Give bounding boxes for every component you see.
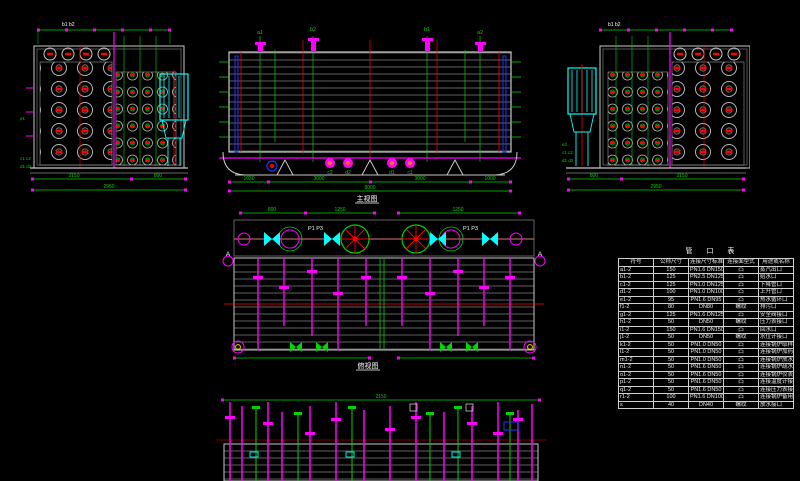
table-row: h1-250DN50螺纹压力表接口 xyxy=(619,319,794,327)
svg-text:2150: 2150 xyxy=(375,394,386,400)
base xyxy=(30,168,188,173)
table-cell: PN1.6 DN150 xyxy=(689,326,724,334)
table-cell: 连接锅炉取样接口 xyxy=(759,341,794,349)
table-cell: i1-2 xyxy=(619,326,654,334)
svg-text:2950: 2950 xyxy=(103,184,114,190)
table-cell: 连接锅炉仪表接口 xyxy=(759,371,794,379)
tube-bank-left xyxy=(608,72,668,165)
shell-clipped xyxy=(224,444,538,481)
table-cell: 凸 xyxy=(724,326,759,334)
table-cell: o1-2 xyxy=(619,371,654,379)
svg-text:d1 d2: d1 d2 xyxy=(20,164,32,169)
column-header: 用途或名称 xyxy=(759,259,794,267)
table-cell: DN80 xyxy=(689,304,724,312)
svg-text:a1: a1 xyxy=(257,30,263,36)
handwheel-valve xyxy=(341,225,369,253)
table-cell: 放水接口 xyxy=(759,401,794,409)
svg-text:A: A xyxy=(538,251,543,258)
table-cell: b1-2 xyxy=(619,274,654,282)
table-cell: d1-2 xyxy=(619,289,654,297)
table-cell: 凸 xyxy=(724,356,759,364)
table-cell: 50 xyxy=(654,386,689,394)
table-cell: 排污口 xyxy=(759,304,794,312)
svg-text:2950: 2950 xyxy=(650,184,661,190)
table-cell: h1-2 xyxy=(619,319,654,327)
table-cell: 凸 xyxy=(724,274,759,282)
section-arrow-left: A xyxy=(223,251,233,266)
table-cell: PN2.5 DN125 xyxy=(689,274,724,282)
table-cell: 热水循环口 xyxy=(759,296,794,304)
table-cell: q1-2 xyxy=(619,386,654,394)
table-cell: 蒸汽出口 xyxy=(759,266,794,274)
table-cell: 50 xyxy=(654,364,689,372)
table-cell: PN1.6 DN50 xyxy=(689,379,724,387)
table-cell: PN1.0 DN50 xyxy=(689,356,724,364)
bottom-dimension: 800 2150 2950 xyxy=(567,173,745,192)
table-cell: 凸 xyxy=(724,296,759,304)
table-row: k1-250PN1.0 DN50凸连接锅炉取样接口 xyxy=(619,341,794,349)
table-cell: 螺纹 xyxy=(724,304,759,312)
table-cell: 连接锅炉疏水接口 xyxy=(759,364,794,372)
top-dimension: 2150 xyxy=(221,394,541,402)
table-cell: PN1.0 DN100 xyxy=(689,289,724,297)
svg-text:e2: e2 xyxy=(562,142,568,147)
table-cell: 压力表接口 xyxy=(759,319,794,327)
table-row: g1-2125PN1.6 DN125凸安全阀接口 xyxy=(619,311,794,319)
table-cell: 下降管口 xyxy=(759,281,794,289)
tube-bank-left xyxy=(40,62,112,165)
nozzle-table-title: 管 口 表 xyxy=(628,246,798,256)
svg-text:800: 800 xyxy=(154,173,163,179)
table-cell: 凸 xyxy=(724,386,759,394)
table-cell: 95 xyxy=(654,296,689,304)
svg-text:1250: 1250 xyxy=(452,207,463,213)
column-header: 符号 xyxy=(619,259,654,267)
table-cell: r1-2 xyxy=(619,394,654,402)
bottom-dimension: 2150 800 2950 xyxy=(31,173,187,192)
nozzle-table: 管 口 表 符号公称尺寸连接尺寸标准连接面型式用途或名称 a1-2150PN1.… xyxy=(618,246,798,409)
cad-canvas[interactable]: b1 b2 xyxy=(0,0,800,481)
left-end-view: b1 b2 xyxy=(20,16,210,204)
table-cell: 凸 xyxy=(724,394,759,402)
table-cell: 100 xyxy=(654,394,689,402)
tag-boxes xyxy=(410,404,473,411)
table-row: a1-2150PN1.6 DN150凸蒸汽出口 xyxy=(619,266,794,274)
table-cell: 上升管口 xyxy=(759,289,794,297)
table-cell: e1-2 xyxy=(619,296,654,304)
table-cell: n1-2 xyxy=(619,364,654,372)
table-cell: 连接锅炉放水接口 xyxy=(759,356,794,364)
nozzle-label: b1 b2 xyxy=(608,22,621,28)
svg-text:主视图: 主视图 xyxy=(357,194,378,203)
right-end-view: b1 b2 xyxy=(560,16,750,204)
top-dimension-line xyxy=(37,29,171,45)
table-row: s40DN40螺纹放水接口 xyxy=(619,401,794,409)
nozzle-schedule: 符号公称尺寸连接尺寸标准连接面型式用途或名称 a1-2150PN1.6 DN15… xyxy=(618,258,794,409)
top-nozzles: a1 b2 b1 a2 xyxy=(255,27,486,52)
table-cell: 50 xyxy=(654,334,689,342)
table-cell: PN1.6 DN50 xyxy=(689,371,724,379)
table-cell: 50 xyxy=(654,349,689,357)
table-cell: 给水口 xyxy=(759,274,794,282)
main-elevation-view: a1 b2 b1 a2 xyxy=(215,22,527,204)
table-cell: 40 xyxy=(654,401,689,409)
table-cell: 凸 xyxy=(724,341,759,349)
table-row: o1-250PN1.6 DN50凸连接锅炉仪表接口 xyxy=(619,371,794,379)
table-cell: 50 xyxy=(654,371,689,379)
table-cell: l1-2 xyxy=(619,349,654,357)
pump-label: P1 P3 xyxy=(463,226,478,232)
table-cell: 凸 xyxy=(724,371,759,379)
table-cell: 凸 xyxy=(724,266,759,274)
table-cell: 连接压力表接口 xyxy=(759,386,794,394)
table-row: d1-2100PN1.0 DN100凸上升管口 xyxy=(619,289,794,297)
table-row: b1-2125PN2.5 DN125凸给水口 xyxy=(619,274,794,282)
table-row: r1-2100PN1.6 DN100凸连接锅炉备用接口 xyxy=(619,394,794,402)
svg-text:1000: 1000 xyxy=(484,176,495,182)
table-cell: 连接锅炉备用接口 xyxy=(759,394,794,402)
svg-text:b2: b2 xyxy=(310,27,316,33)
table-cell: 125 xyxy=(654,311,689,319)
table-cell: PN1.6 DN150 xyxy=(689,266,724,274)
table-cell: 凸 xyxy=(724,289,759,297)
table-cell: PN1.0 DN50 xyxy=(689,341,724,349)
table-row: f1-280DN80螺纹排污口 xyxy=(619,304,794,312)
top-piping: P1 P3 P1 P3 xyxy=(234,220,534,256)
table-cell: g1-2 xyxy=(619,311,654,319)
column-header: 公称尺寸 xyxy=(654,259,689,267)
svg-text:800: 800 xyxy=(590,173,599,179)
svg-text:c1 c2: c1 c2 xyxy=(562,150,573,155)
svg-text:b1: b1 xyxy=(424,27,430,33)
table-cell: 螺纹 xyxy=(724,334,759,342)
section-arrow-right: A xyxy=(535,251,545,266)
left-stub-nozzles xyxy=(26,88,34,136)
table-cell: 水位计接口 xyxy=(759,334,794,342)
riser-flanges xyxy=(225,416,523,435)
top-dimensions: 800 1250 1250 xyxy=(239,207,521,215)
table-cell: a1-2 xyxy=(619,266,654,274)
table-cell: 50 xyxy=(654,319,689,327)
table-cell: k1-2 xyxy=(619,341,654,349)
nozzle-label: b1 b2 xyxy=(62,22,75,28)
svg-text:8000: 8000 xyxy=(364,185,375,191)
top-tube-row xyxy=(44,48,110,60)
svg-text:800: 800 xyxy=(268,207,277,213)
table-row: i1-2150PN1.6 DN150凸回水口 xyxy=(619,326,794,334)
table-cell: 凸 xyxy=(724,379,759,387)
view-label-main: 主视图 xyxy=(355,194,379,203)
column-header: 连接尺寸标准 xyxy=(689,259,724,267)
table-row: p1-250PN1.6 DN50凸连接温度计接口 xyxy=(619,379,794,387)
svg-text:e1: e1 xyxy=(20,116,26,121)
svg-text:1030: 1030 xyxy=(243,176,254,182)
table-cell: j1-2 xyxy=(619,334,654,342)
table-row: l1-250PN1.0 DN50凸连接锅炉加药接口 xyxy=(619,349,794,357)
table-row: j1-250DN50螺纹水位计接口 xyxy=(619,334,794,342)
svg-text:2150: 2150 xyxy=(676,173,687,179)
table-row: q1-250PN1.6 DN50凸连接压力表接口 xyxy=(619,386,794,394)
pump-label: P1 P3 xyxy=(308,226,323,232)
svg-text:A: A xyxy=(226,251,231,258)
top-dimension-line xyxy=(599,29,733,32)
table-cell: DN40 xyxy=(689,401,724,409)
table-cell: c1-2 xyxy=(619,281,654,289)
table-cell: p1-2 xyxy=(619,379,654,387)
svg-text:俯视图: 俯视图 xyxy=(358,361,379,370)
plan-view: 800 1250 1250 xyxy=(220,206,548,374)
table-cell: PN1.0 DN125 xyxy=(689,281,724,289)
svg-text:a2: a2 xyxy=(477,30,483,36)
table-cell: 连接锅炉加药接口 xyxy=(759,349,794,357)
table-cell: 50 xyxy=(654,379,689,387)
svg-text:2150: 2150 xyxy=(68,173,79,179)
table-cell: 150 xyxy=(654,266,689,274)
table-cell: 凸 xyxy=(724,349,759,357)
handwheel-valve xyxy=(402,225,430,253)
table-cell: 50 xyxy=(654,356,689,364)
side-labels: e2 c1 c2 d1 d2 xyxy=(562,142,574,163)
table-cell: PN1.6 DN50 xyxy=(689,364,724,372)
table-cell: 回水口 xyxy=(759,326,794,334)
svg-text:1250: 1250 xyxy=(334,207,345,213)
table-cell: 150 xyxy=(654,326,689,334)
table-cell: 100 xyxy=(654,289,689,297)
top-tube-row xyxy=(674,48,740,60)
bottom-partial-view: 2150 xyxy=(214,392,548,481)
side-labels: e1 c1 c2 d1 d2 xyxy=(20,116,32,169)
table-cell: 80 xyxy=(654,304,689,312)
table-cell: 凸 xyxy=(724,311,759,319)
table-row: c1-2125PN1.0 DN125凸下降管口 xyxy=(619,281,794,289)
table-cell: 螺纹 xyxy=(724,401,759,409)
table-cell: s xyxy=(619,401,654,409)
table-row: m1-250PN1.0 DN50凸连接锅炉放水接口 xyxy=(619,356,794,364)
table-cell: 凸 xyxy=(724,364,759,372)
svg-text:d1 d2: d1 d2 xyxy=(562,158,574,163)
table-cell: 凸 xyxy=(724,281,759,289)
table-cell: f1-2 xyxy=(619,304,654,312)
table-header-row: 符号公称尺寸连接尺寸标准连接面型式用途或名称 xyxy=(619,259,794,267)
table-cell: PN1.6 DN95 xyxy=(689,296,724,304)
table-cell: 连接温度计接口 xyxy=(759,379,794,387)
table-row: e1-295PN1.6 DN95凸热水循环口 xyxy=(619,296,794,304)
dimension-chain: 1030 3000 3000 1000 8000 xyxy=(228,176,512,193)
table-cell: 125 xyxy=(654,274,689,282)
table-row: n1-250PN1.6 DN50凸连接锅炉疏水接口 xyxy=(619,364,794,372)
column-header: 连接面型式 xyxy=(724,259,759,267)
svg-text:3000: 3000 xyxy=(313,176,324,182)
table-cell: 安全阀接口 xyxy=(759,311,794,319)
table-cell: 50 xyxy=(654,341,689,349)
svg-text:3000: 3000 xyxy=(414,176,425,182)
tube-bank-right xyxy=(116,72,176,165)
bottom-dimensions xyxy=(233,357,535,360)
view-label-plan: 俯视图 xyxy=(356,361,380,370)
tube-bank-right xyxy=(672,62,744,165)
table-cell: DN50 xyxy=(689,319,724,327)
table-cell: 螺纹 xyxy=(724,319,759,327)
table-cell: PN1.6 DN125 xyxy=(689,311,724,319)
table-cell: PN1.0 DN50 xyxy=(689,349,724,357)
svg-text:c1 c2: c1 c2 xyxy=(20,156,31,161)
table-cell: 125 xyxy=(654,281,689,289)
table-cell: PN1.6 DN50 xyxy=(689,386,724,394)
table-cell: m1-2 xyxy=(619,356,654,364)
table-cell: DN50 xyxy=(689,334,724,342)
table-cell: PN1.6 DN100 xyxy=(689,394,724,402)
